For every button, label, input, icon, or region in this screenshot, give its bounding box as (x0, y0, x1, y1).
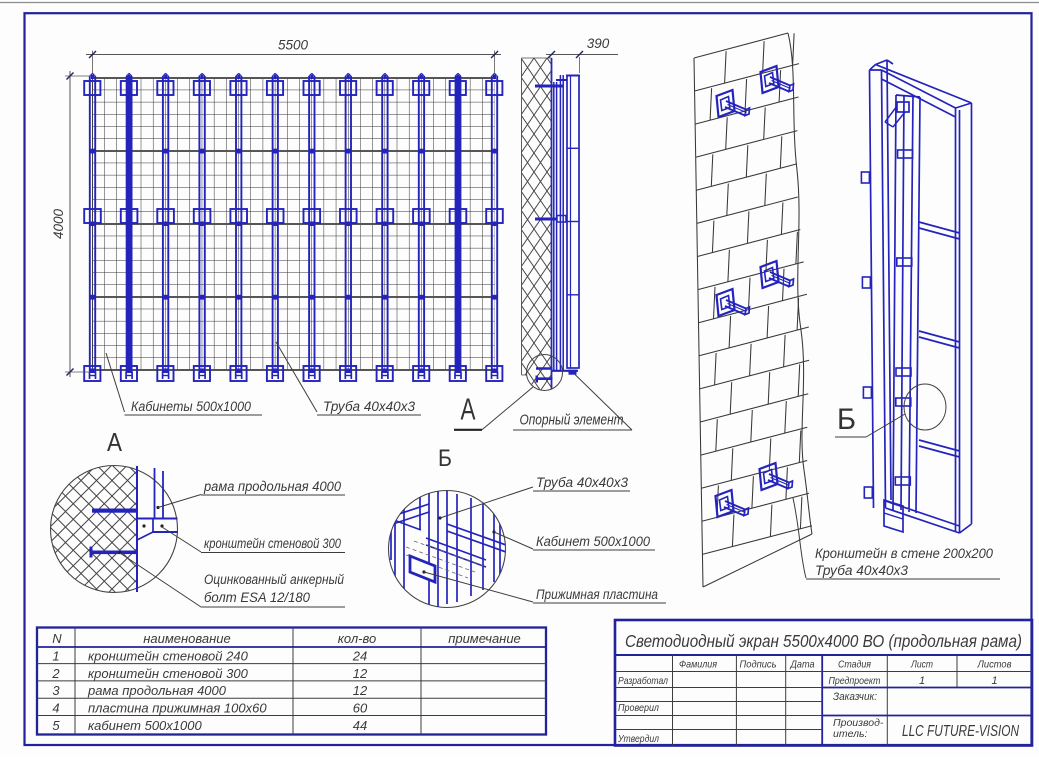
svg-text:4: 4 (52, 701, 59, 716)
svg-text:болт ESA 12/180: болт ESA 12/180 (204, 590, 310, 605)
svg-text:Заказчик:: Заказчик: (833, 691, 877, 703)
svg-text:Оцинкованный анкерный: Оцинкованный анкерный (204, 572, 344, 587)
svg-text:N: N (52, 631, 62, 646)
svg-text:Листов: Листов (977, 659, 1012, 671)
svg-text:Светодиодный экран 5500х4000 В: Светодиодный экран 5500х4000 ВО (продоль… (625, 631, 1022, 651)
svg-text:Опорный элемент: Опорный элемент (520, 412, 624, 429)
svg-text:Лист: Лист (910, 659, 933, 671)
svg-text:Проверил: Проверил (618, 702, 659, 714)
svg-text:кронштейн стеновой 300: кронштейн стеновой 300 (88, 666, 249, 681)
svg-text:наименование: наименование (143, 631, 230, 646)
svg-text:Б: Б (837, 403, 856, 436)
svg-text:Труба 40х40х3: Труба 40х40х3 (536, 475, 628, 490)
svg-text:1: 1 (991, 675, 997, 687)
svg-text:Разработал: Разработал (618, 675, 668, 687)
svg-text:примечание: примечание (448, 631, 521, 646)
svg-text:24: 24 (352, 649, 367, 664)
svg-text:2: 2 (51, 666, 60, 681)
svg-text:60: 60 (353, 701, 368, 716)
svg-text:1: 1 (52, 649, 59, 664)
svg-text:Кронштейн в стене 200х200: Кронштейн в стене 200х200 (815, 546, 993, 561)
svg-text:Предпроект: Предпроект (829, 675, 881, 687)
svg-text:кронштейн стеновой 240: кронштейн стеновой 240 (88, 649, 249, 664)
svg-text:кол-во: кол-во (338, 631, 376, 646)
svg-text:Кабинеты 500х1000: Кабинеты 500х1000 (131, 399, 251, 414)
svg-text:44: 44 (353, 718, 367, 733)
svg-text:Подпись: Подпись (740, 659, 777, 671)
svg-text:кабинет 500х1000: кабинет 500х1000 (88, 718, 202, 733)
svg-text:Кабинет 500х1000: Кабинет 500х1000 (536, 534, 650, 549)
svg-text:12: 12 (353, 666, 368, 681)
svg-text:Труба 40х40х3: Труба 40х40х3 (815, 563, 908, 578)
svg-text:LLC FUTURE-VISION: LLC FUTURE-VISION (902, 723, 1020, 740)
svg-text:Фамилия: Фамилия (679, 659, 717, 671)
svg-text:Прижимная пластина: Прижимная пластина (536, 587, 658, 602)
svg-text:5: 5 (52, 718, 60, 733)
svg-text:пластина прижимная 100х60: пластина прижимная 100х60 (88, 701, 267, 716)
svg-text:Утвердил: Утвердил (617, 733, 659, 745)
svg-text:рама продольная 4000: рама продольная 4000 (203, 479, 341, 494)
svg-text:А: А (107, 427, 123, 457)
svg-text:Труба 40х40х3: Труба 40х40х3 (323, 399, 415, 414)
svg-text:А: А (461, 392, 476, 427)
svg-text:390: 390 (587, 36, 610, 51)
svg-text:4000: 4000 (51, 208, 66, 239)
svg-text:5500: 5500 (278, 38, 309, 53)
svg-text:1: 1 (919, 675, 925, 687)
svg-text:Стадия: Стадия (838, 659, 871, 671)
svg-text:12: 12 (353, 683, 368, 698)
svg-text:Дата: Дата (790, 659, 815, 671)
svg-text:Б: Б (438, 445, 452, 472)
svg-text:кронштейн стеновой 300: кронштейн стеновой 300 (204, 536, 341, 551)
svg-text:рама продольная 4000: рама продольная 4000 (87, 683, 227, 698)
svg-text:итель:: итель: (833, 728, 868, 740)
svg-text:3: 3 (52, 683, 60, 698)
